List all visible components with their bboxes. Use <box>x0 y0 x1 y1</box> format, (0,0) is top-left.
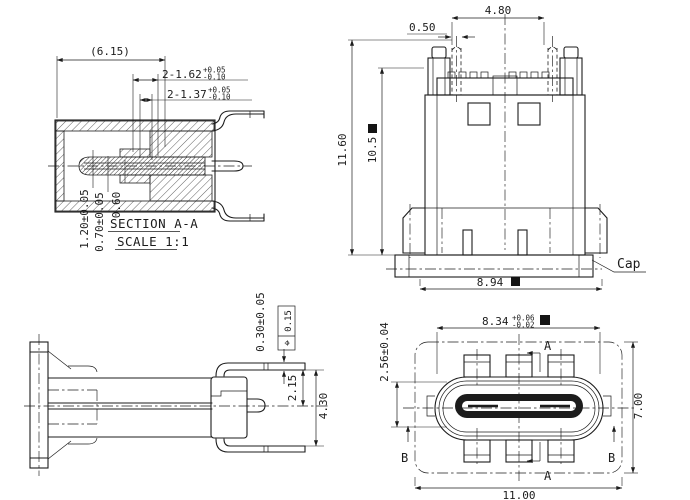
position-tolerance-frame: ⌖ 0.15 <box>278 306 295 350</box>
dim-overall-width: 11.00 <box>502 489 535 500</box>
contact-upper <box>120 149 150 157</box>
dim-overall-length: (6.15) <box>90 45 130 58</box>
flange <box>30 334 97 476</box>
hole-right <box>518 103 540 125</box>
top-teeth <box>448 72 549 95</box>
side-body <box>24 378 330 437</box>
section-letter-a: A <box>544 339 552 353</box>
right-wing <box>585 208 607 253</box>
center-pin <box>247 399 265 412</box>
insulator-upper <box>150 131 212 157</box>
hole-left <box>468 103 490 125</box>
insulator-lower <box>150 175 212 201</box>
dim-top-width: 4.80 <box>485 4 512 17</box>
dim-body-height: 10.5 <box>366 137 379 164</box>
cad-drawing: (6.15) 2-1.62 +0.05 -0.10 2-1.37 +0.05 -… <box>0 0 690 500</box>
section-letter-b: B <box>401 451 408 465</box>
bottom-tab-left <box>463 230 472 255</box>
contact-lower <box>120 175 150 183</box>
view-section-aa: (6.15) 2-1.62 +0.05 -0.10 2-1.37 +0.05 -… <box>48 45 264 252</box>
section-letter-b: B <box>608 451 615 465</box>
section-scale: SCALE 1:1 <box>117 234 189 249</box>
view-bottom: 8.34 +0.06 -0.02 2.56±0.04 7.00 11.00 A … <box>378 314 645 500</box>
dim-depth: 4.30 <box>317 393 330 420</box>
dim-pin-row1-minus: -0.10 <box>203 73 226 82</box>
left-post <box>428 47 450 95</box>
section-marker-b-left: B <box>401 426 408 465</box>
section-marker-b-right: B <box>608 426 615 465</box>
right-post <box>560 47 582 95</box>
view-front: Cap 4.80 0.50 11.60 10.5 8.94 <box>336 4 646 289</box>
hidden-pins <box>452 36 557 102</box>
dim-tongue-thickness: 1.20±0.05 <box>78 189 91 249</box>
dim-pin-row2-minus: -0.10 <box>208 93 231 102</box>
dim-lead-standoff: 0.30±0.05 <box>254 292 267 352</box>
dim-pin-width: 0.50 <box>409 21 436 34</box>
cap-body <box>395 255 593 277</box>
critical-dim-marker <box>511 277 520 286</box>
position-tolerance-value: 0.15 <box>284 310 294 332</box>
shell-top-wall <box>56 121 214 131</box>
view-side: 0.30±0.05 ⌖ 0.15 2.15 4.30 <box>24 292 330 476</box>
left-wing <box>403 208 425 253</box>
dim-shell-width-minus: -0.02 <box>512 321 535 330</box>
cap-label: Cap <box>617 257 641 272</box>
section-letter-a: A <box>544 469 552 483</box>
drawing-canvas: (6.15) 2-1.62 +0.05 -0.10 2-1.37 +0.05 -… <box>0 0 690 500</box>
critical-dim-marker <box>368 124 377 133</box>
critical-dim-marker <box>540 315 550 325</box>
bottom-tab-right <box>518 230 527 255</box>
dim-shell-height: 2.56±0.04 <box>378 322 391 382</box>
dim-pin-row1: 2-1.62 <box>162 68 202 81</box>
dim-contact-thickness: 0.70±0.05 <box>93 192 106 252</box>
dim-pin-pitch: 2.15 <box>286 375 299 402</box>
dim-overall-height: 11.60 <box>336 133 349 166</box>
dim-body-height: 7.00 <box>632 393 645 420</box>
dim-shell-width: 8.34 <box>482 315 509 328</box>
dim-pin-row2: 2-1.37 <box>167 88 207 101</box>
dim-gap: 0.60 <box>110 192 123 219</box>
dim-cap-width: 8.94 <box>477 276 504 289</box>
section-title: SECTION A-A <box>110 216 198 231</box>
position-symbol-icon: ⌖ <box>281 340 294 346</box>
